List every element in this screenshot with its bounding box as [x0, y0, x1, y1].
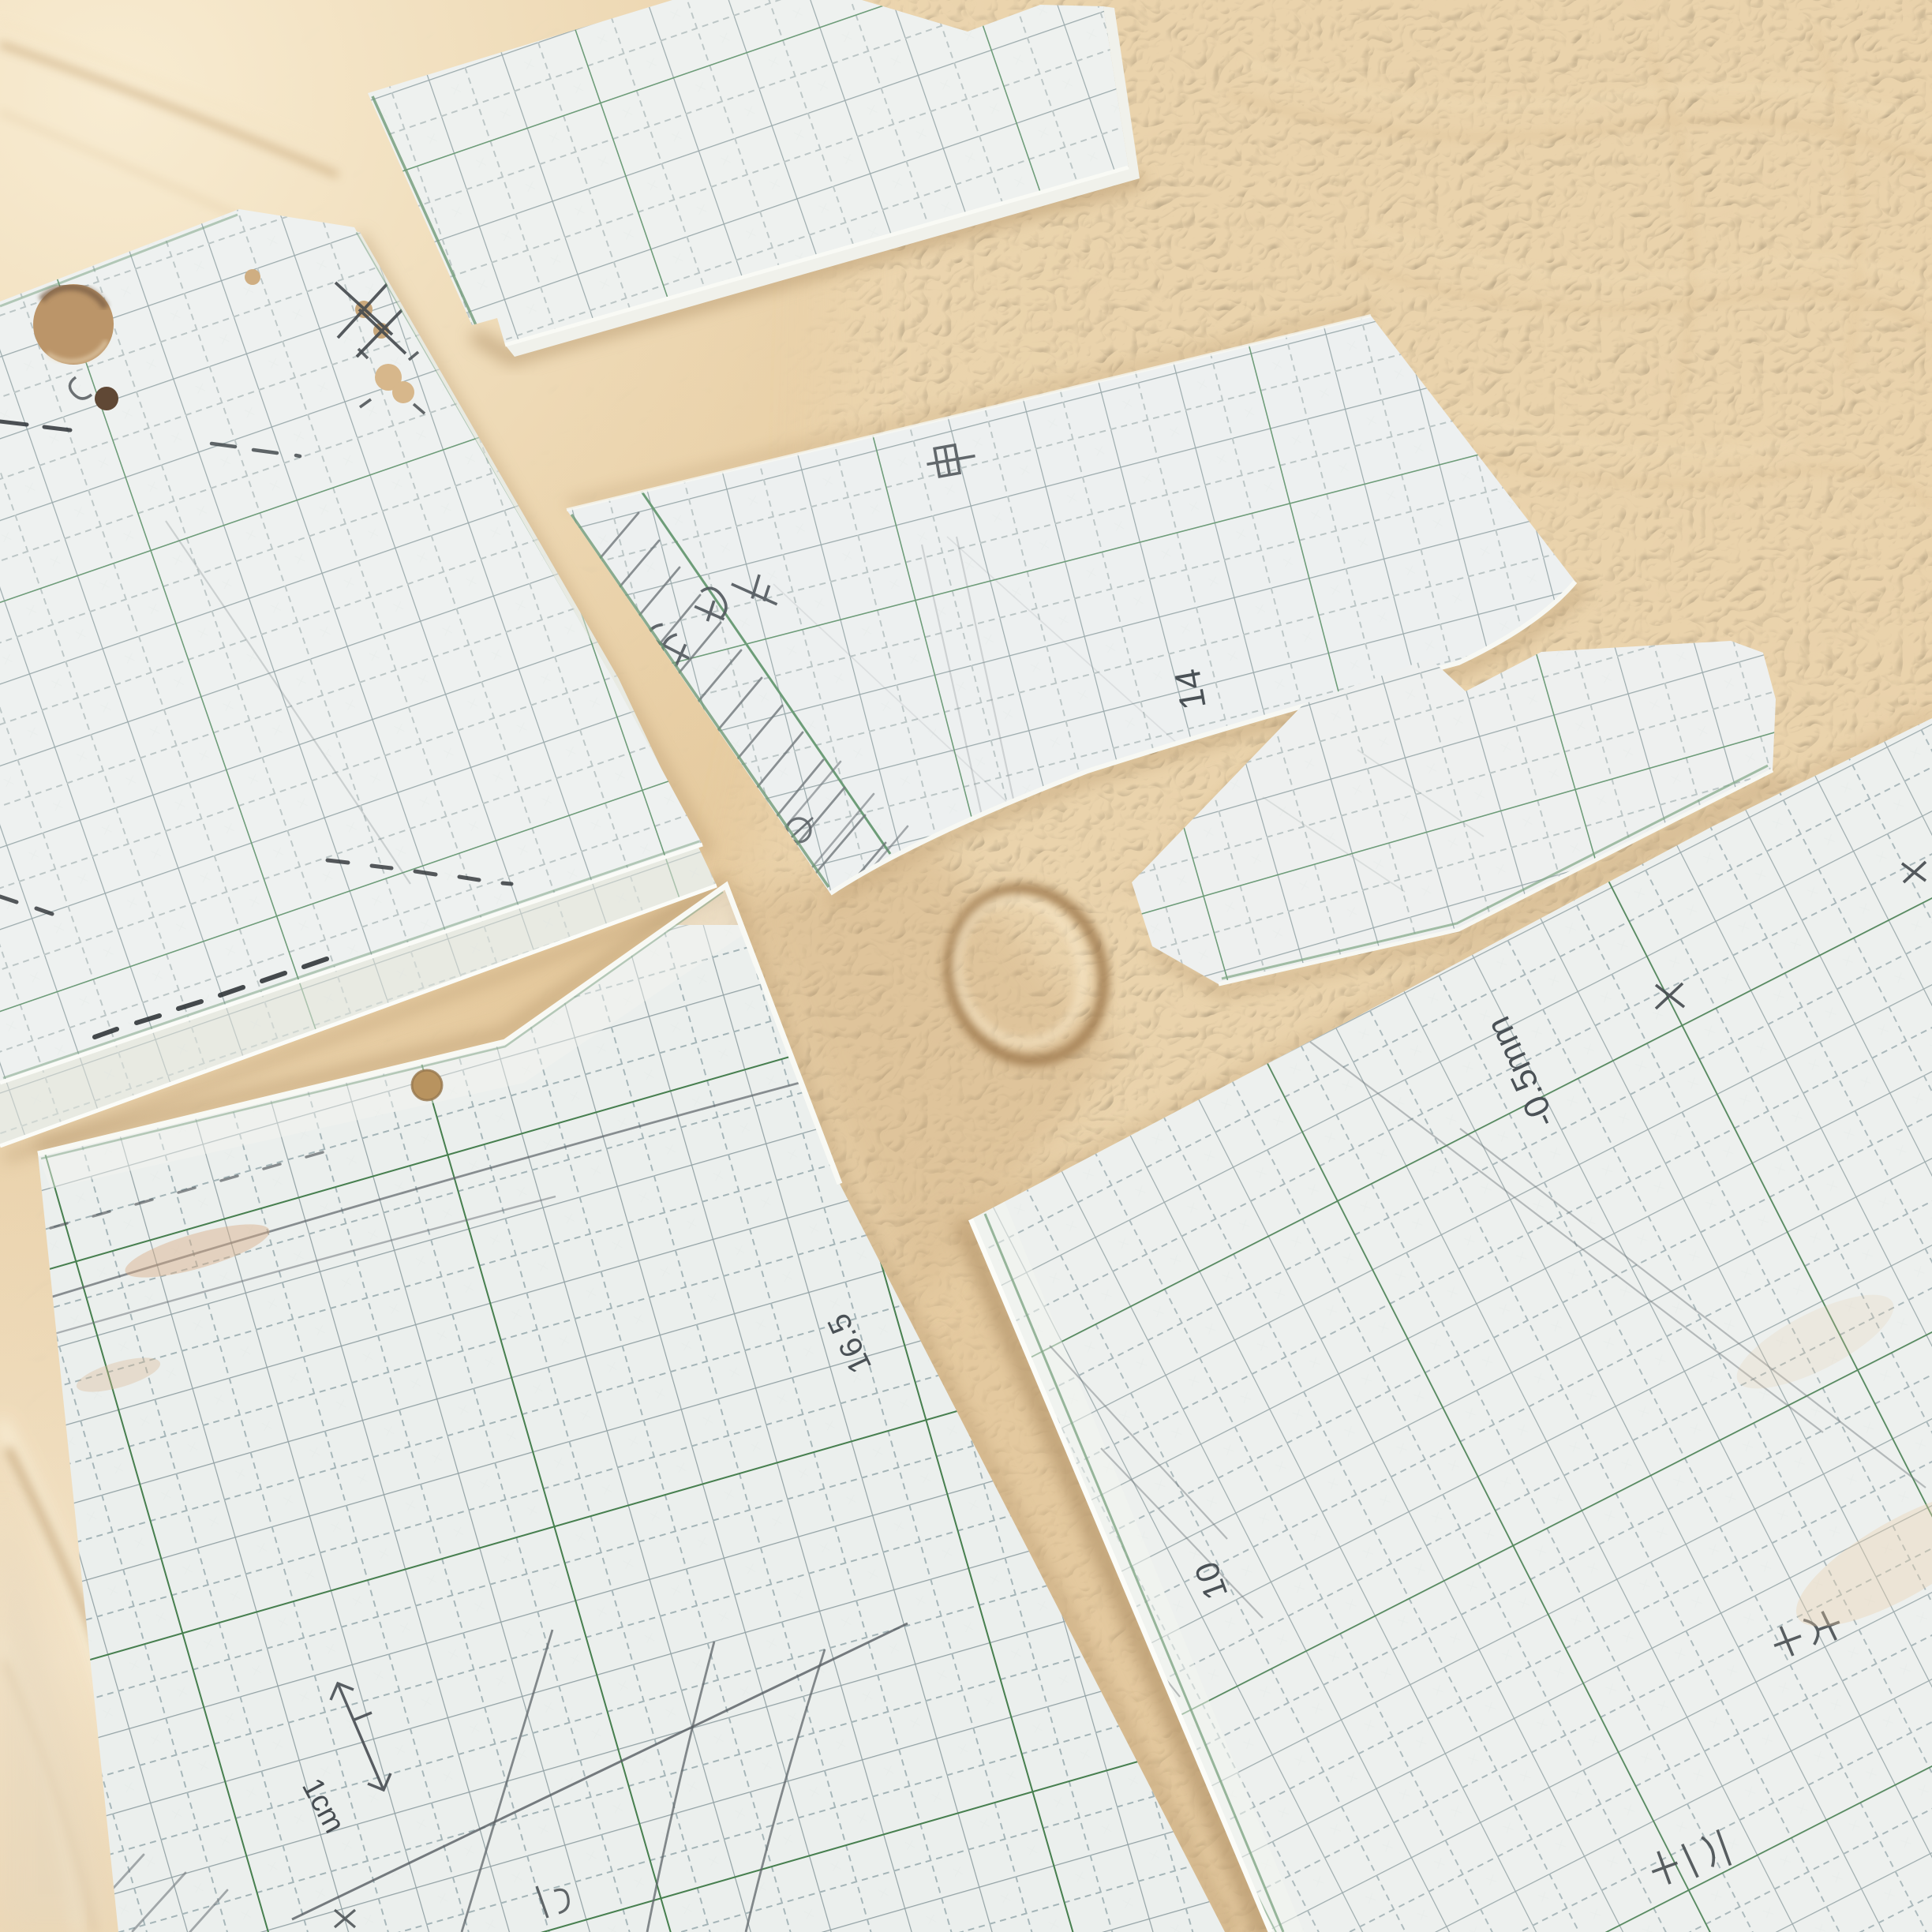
svg-text:14: 14	[1166, 666, 1214, 713]
